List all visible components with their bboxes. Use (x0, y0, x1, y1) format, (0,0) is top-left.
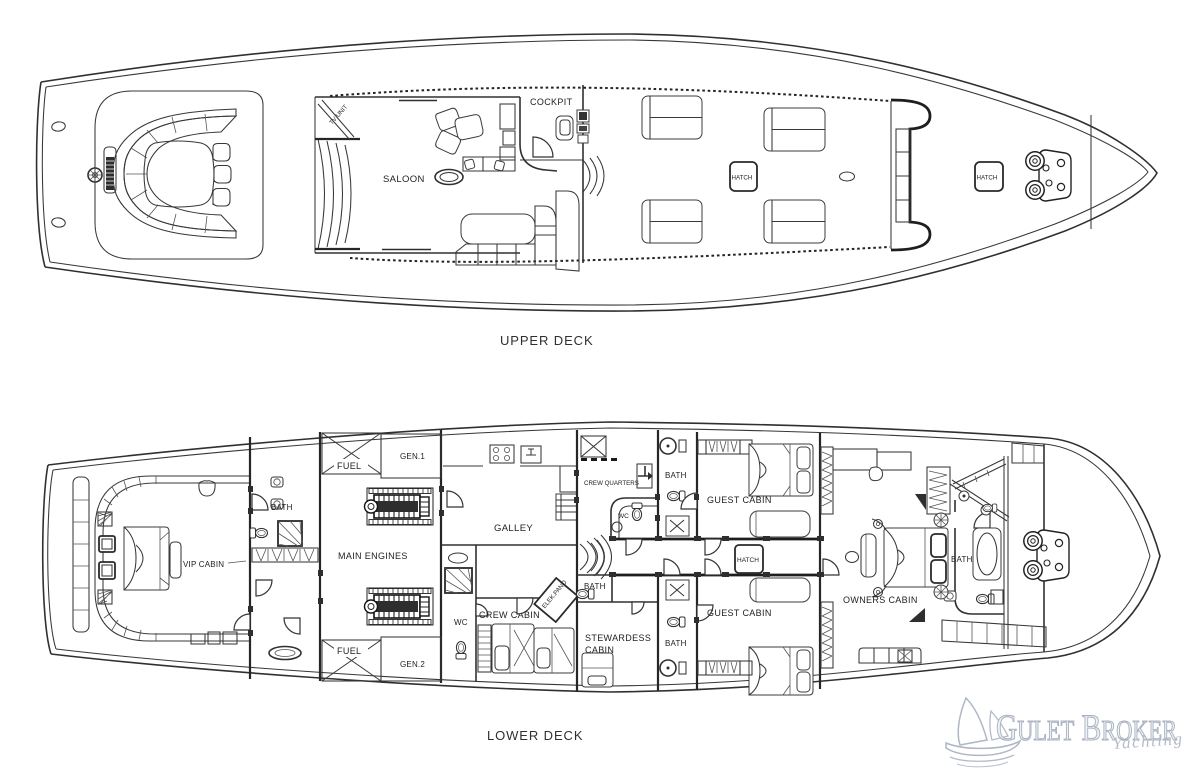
svg-text:CREW CABIN: CREW CABIN (479, 610, 540, 620)
svg-text:GUEST CABIN: GUEST CABIN (707, 495, 772, 505)
svg-text:BATH: BATH (665, 639, 687, 648)
svg-text:BATH: BATH (665, 471, 687, 480)
svg-text:COCKPIT: COCKPIT (530, 97, 573, 107)
svg-text:HATCH: HATCH (732, 175, 753, 182)
svg-text:LOWER DECK: LOWER DECK (487, 728, 583, 743)
svg-text:SALOON: SALOON (383, 174, 425, 185)
svg-text:WC: WC (454, 618, 468, 627)
svg-text:HATCH: HATCH (737, 557, 759, 564)
svg-text:UPPER DECK: UPPER DECK (500, 333, 594, 348)
svg-text:GUEST CABIN: GUEST CABIN (707, 608, 772, 618)
svg-text:BATH: BATH (951, 555, 973, 564)
svg-text:HATCH: HATCH (977, 175, 998, 182)
svg-text:BATH: BATH (584, 582, 606, 591)
svg-text:CREW QUARTERS: CREW QUARTERS (584, 480, 639, 487)
svg-text:FUEL: FUEL (337, 646, 361, 656)
svg-text:STEWARDESS: STEWARDESS (585, 633, 651, 643)
svg-text:WC: WC (618, 513, 629, 520)
svg-text:GALLEY: GALLEY (494, 523, 533, 534)
svg-text:GEN.1: GEN.1 (400, 452, 425, 461)
svg-text:FUEL: FUEL (337, 461, 361, 471)
svg-text:VIP CABIN: VIP CABIN (183, 560, 224, 569)
svg-text:BATH: BATH (271, 503, 293, 512)
svg-text:GEN.2: GEN.2 (400, 660, 425, 669)
svg-text:MAIN ENGINES: MAIN ENGINES (338, 551, 408, 561)
svg-text:OWNERS CABIN: OWNERS CABIN (843, 595, 918, 605)
